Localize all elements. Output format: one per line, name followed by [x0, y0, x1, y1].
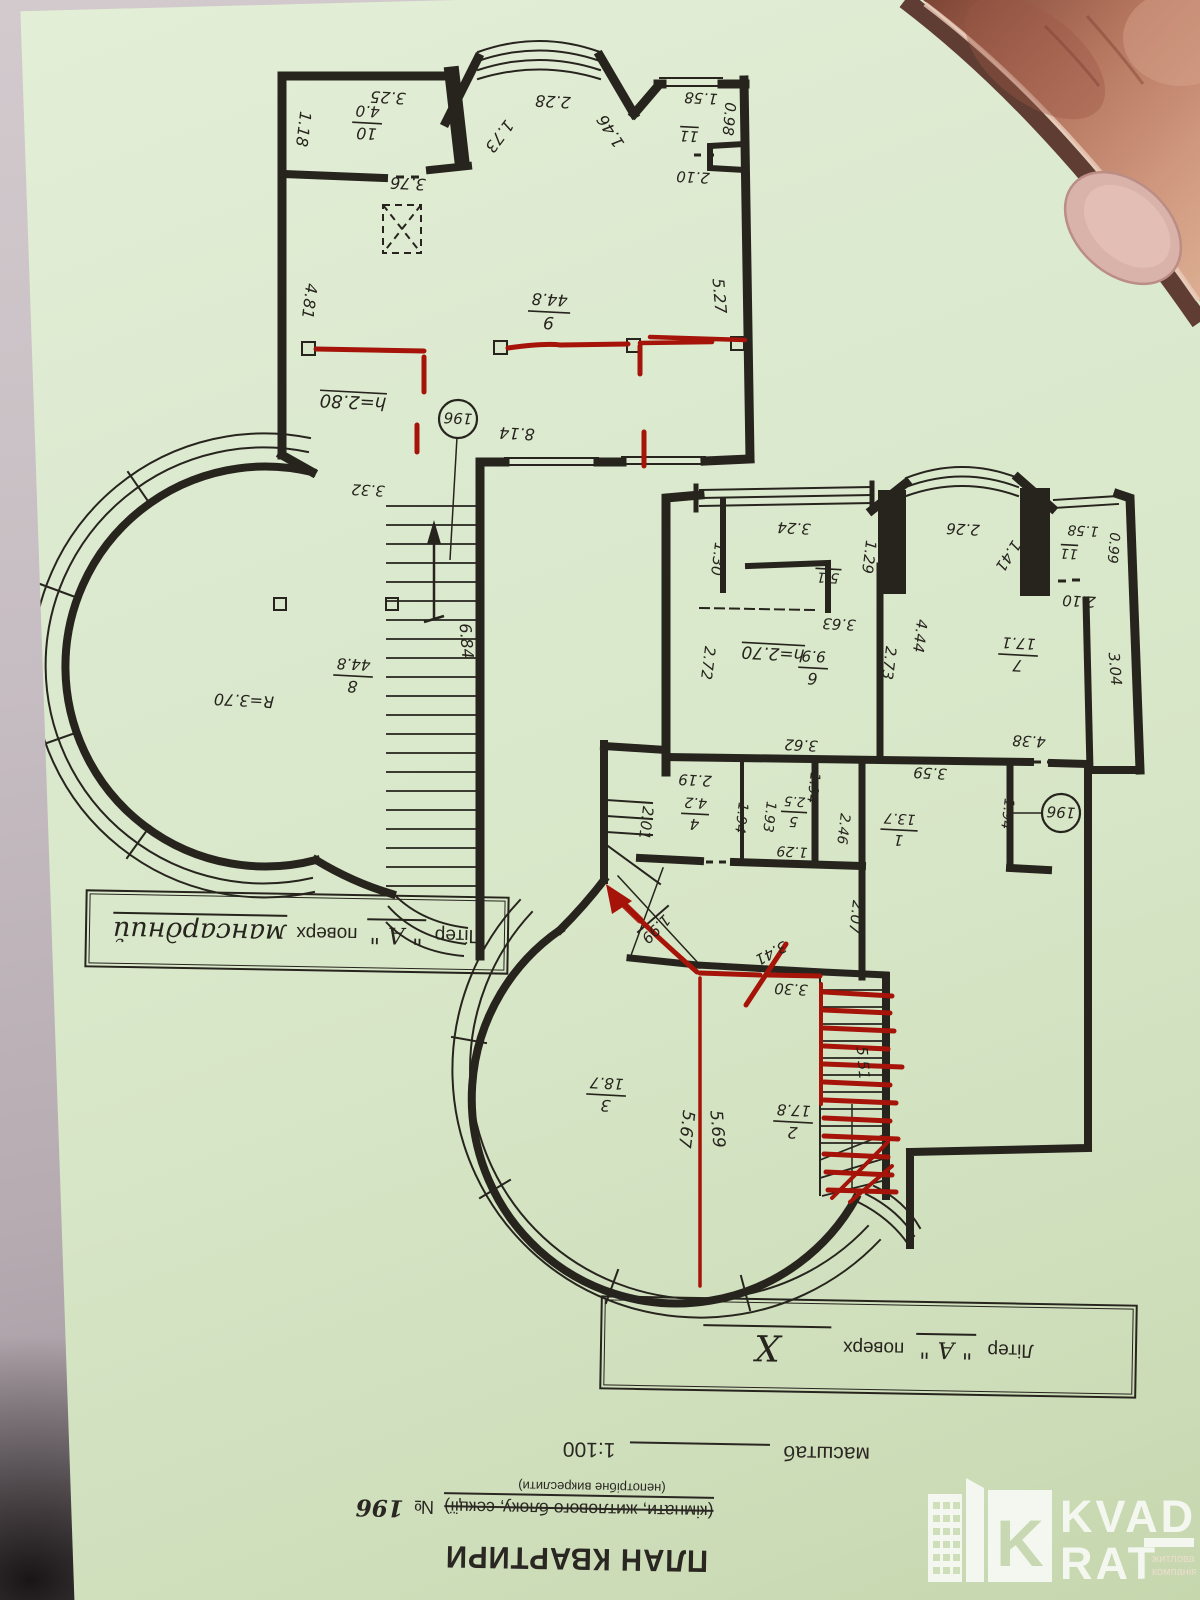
svg-text:8.14: 8.14 [499, 423, 536, 444]
unit-line: (кімнати, житлового блоку, секції) № 196 [356, 1491, 714, 1527]
room-area-label: 52.5 [780, 792, 808, 829]
document-title: ПЛАН КВАРТИРИ [445, 1538, 709, 1579]
svg-text:1.30: 1.30 [707, 541, 729, 576]
dimension-label: 4.44 [909, 618, 931, 653]
svg-text:9.9: 9.9 [801, 646, 826, 665]
dimension-label: 2.46 [833, 812, 853, 845]
dimension-label: 1.46 [593, 111, 628, 151]
svg-text:4.44: 4.44 [909, 618, 931, 653]
dimension-label: 2.01 [635, 805, 657, 840]
svg-text:0.98: 0.98 [719, 102, 740, 137]
photo-of-floor-plan-document: 3.251.183.761.732.281.461.580.98112.104.… [0, 0, 1200, 1600]
dimension-label: 6.84 [455, 622, 477, 659]
dimension-label: h=2.80 [319, 389, 387, 413]
scale-value: 1:100 [563, 1436, 616, 1461]
dimension-label: 2.10 [676, 167, 710, 187]
dimension-label: 4.81 [298, 282, 321, 320]
finger [895, 0, 1200, 365]
room-area-label: 844.8 [332, 654, 374, 697]
svg-text:2.28: 2.28 [535, 91, 572, 112]
svg-text:4.0: 4.0 [355, 101, 380, 120]
svg-text:7: 7 [1011, 656, 1023, 676]
dimension-label: 2.26 [946, 519, 980, 539]
svg-text:1.29: 1.29 [776, 842, 808, 860]
unit-number-badge: 196 [438, 399, 478, 439]
dimension-label: 1.41 [991, 537, 1024, 575]
svg-text:2.26: 2.26 [946, 519, 980, 539]
dimension-label: 11 [679, 127, 699, 146]
logo-name-line2: RAT [1060, 1538, 1158, 1589]
svg-text:17.8: 17.8 [776, 1100, 811, 1120]
room-area-label: 717.1 [997, 633, 1039, 676]
room-area-label: 44.2 [680, 793, 710, 833]
dimension-label: 3.41 [752, 937, 790, 969]
svg-text:5.51: 5.51 [853, 1046, 874, 1081]
caption-floor-name: X [703, 1324, 832, 1366]
dimension-label: 0.98 [719, 102, 740, 137]
caption-prefix: Літер [435, 923, 482, 946]
svg-text:196: 196 [1046, 802, 1076, 821]
svg-text:1.29: 1.29 [858, 539, 880, 574]
svg-text:196: 196 [443, 408, 473, 427]
svg-text:8: 8 [347, 677, 358, 697]
scale-label: масштаб [783, 1440, 870, 1466]
svg-text:2.01: 2.01 [635, 805, 657, 840]
dimension-label: R=3.70 [213, 689, 274, 711]
strike-note: (непотрібне викреслити) [518, 1478, 666, 1496]
svg-text:3.41: 3.41 [752, 937, 790, 969]
dimension-label: 5.1 [815, 568, 842, 585]
room-area-label: 318.7 [585, 1073, 627, 1116]
dimension-label: 2.72 [697, 645, 719, 680]
dimension-label: 1.94 [997, 797, 1017, 830]
logo-name-line1: KVAD [1060, 1491, 1196, 1542]
dimension-label: 1.94 [731, 801, 751, 834]
dimension-label: 5.69 [705, 1109, 728, 1148]
dimension-label: 3.30 [774, 979, 808, 999]
svg-text:3.62: 3.62 [784, 735, 818, 755]
svg-text:4.81: 4.81 [298, 282, 321, 320]
svg-text:1.99: 1.99 [638, 911, 674, 947]
dimension-label: 1.99 [638, 911, 674, 947]
svg-text:2.72: 2.72 [697, 645, 719, 680]
dimension-label: h=2.70 [741, 641, 805, 664]
svg-text:4.2: 4.2 [684, 793, 707, 810]
svg-text:1.58: 1.58 [684, 88, 718, 108]
svg-text:44.8: 44.8 [336, 654, 371, 674]
dimension-label: 1.29 [776, 842, 808, 860]
svg-text:3.76: 3.76 [390, 173, 427, 194]
svg-text:13.7: 13.7 [883, 809, 916, 827]
svg-text:5.69: 5.69 [705, 1109, 728, 1148]
scale-rule-line [629, 1441, 769, 1446]
logo-tagline-line2: компанія [1152, 1566, 1196, 1578]
svg-text:1.94: 1.94 [731, 801, 751, 834]
logo-tagline-line1: житлова [1152, 1553, 1196, 1565]
svg-text:R=3.70: R=3.70 [213, 689, 274, 711]
svg-text:1.73: 1.73 [481, 116, 518, 156]
svg-text:5.67: 5.67 [674, 1109, 698, 1149]
dimension-label: 1.58 [1067, 521, 1099, 539]
svg-text:10: 10 [356, 123, 377, 143]
svg-text:2.10: 2.10 [676, 167, 710, 187]
caption-word: поверх [843, 1336, 905, 1359]
svg-text:1.46: 1.46 [593, 111, 628, 151]
dimension-label: 8.14 [499, 423, 536, 444]
svg-text:3: 3 [600, 1096, 611, 1116]
svg-text:17.1: 17.1 [1001, 633, 1036, 653]
svg-text:5.27: 5.27 [708, 277, 730, 315]
svg-text:18.7: 18.7 [589, 1073, 624, 1093]
lower-plan-walls [452, 467, 1140, 1318]
svg-text:3.32: 3.32 [351, 480, 385, 500]
dimension-label: 4.38 [1012, 731, 1046, 751]
dimension-label: 11 [1060, 545, 1079, 562]
svg-text:11: 11 [679, 127, 699, 146]
unit-number-badge: 196 [1041, 793, 1081, 833]
dimension-label: 2.28 [535, 91, 572, 112]
room-area-label: 113.7 [879, 809, 918, 850]
dimension-label: 2.19 [678, 770, 712, 790]
dimension-label: 1.29 [858, 539, 880, 574]
svg-text:1: 1 [893, 831, 903, 849]
caption-floor-name: мансардний [113, 912, 288, 949]
kvadrat-logo: K KVAD RAT житлова компанія [928, 1478, 1196, 1598]
dimension-label: 3.59 [913, 763, 947, 783]
svg-text:2.46: 2.46 [833, 812, 853, 845]
svg-text:3.04: 3.04 [1105, 652, 1126, 687]
svg-text:5: 5 [789, 813, 799, 829]
building-icon [928, 1478, 984, 1582]
room-area-label: 217.8 [772, 1100, 814, 1143]
svg-text:3.59: 3.59 [913, 763, 947, 783]
dimension-label: 3.63 [822, 614, 856, 634]
dimension-label: 1.73 [481, 116, 518, 156]
svg-text:3.30: 3.30 [774, 979, 808, 999]
logo-letter: K [996, 1506, 1044, 1580]
svg-text:2: 2 [787, 1123, 798, 1143]
caption-prefix: Літер [987, 1338, 1034, 1361]
dimension-label: 3.62 [784, 735, 818, 755]
scale-row: масштаб 1:100 [563, 1436, 870, 1465]
svg-text:1.18: 1.18 [292, 110, 315, 148]
svg-text:1.93: 1.93 [759, 800, 779, 833]
svg-text:6: 6 [807, 669, 818, 689]
svg-text:6.84: 6.84 [455, 622, 477, 659]
dimension-label: 5.27 [708, 277, 730, 315]
dimension-label: 1.93 [759, 800, 779, 833]
dimension-label: 0.99 [1104, 532, 1123, 565]
upper-plan-stairs [386, 437, 478, 956]
svg-text:1.41: 1.41 [991, 537, 1024, 575]
dimension-label: 3.24 [777, 518, 811, 538]
svg-text:2.07: 2.07 [845, 899, 867, 935]
dimension-label: 3.04 [1105, 652, 1126, 687]
dimension-label: 5.67 [674, 1109, 698, 1149]
svg-text:5.1: 5.1 [817, 568, 840, 585]
svg-text:1.94: 1.94 [997, 797, 1017, 830]
svg-text:2.10: 2.10 [1062, 591, 1096, 611]
unit-number: 196 [356, 1494, 404, 1522]
floor-caption-upper: Літер " А " поверх мансардний [84, 889, 509, 974]
dimension-label: 3.32 [351, 480, 385, 500]
dimension-label: 1.30 [707, 541, 729, 576]
unit-number-label: № [414, 1495, 435, 1517]
logo-t-bar [1144, 1538, 1194, 1547]
svg-text:9: 9 [543, 312, 555, 333]
room-area-label: 944.8 [527, 289, 571, 333]
svg-text:4.38: 4.38 [1012, 731, 1046, 751]
dimension-label: 1.18 [292, 110, 315, 148]
unit-line-text: (кімнати, житлового блоку, секції) [444, 1497, 714, 1522]
svg-text:44.8: 44.8 [531, 289, 568, 310]
svg-text:4: 4 [689, 815, 699, 833]
svg-text:2.19: 2.19 [678, 770, 712, 790]
logo-k-tile: K [988, 1490, 1052, 1582]
dimension-label: 5.51 [853, 1046, 874, 1081]
svg-text:11: 11 [1060, 545, 1079, 562]
caption-word: поверх [296, 921, 358, 944]
svg-text:3.24: 3.24 [777, 518, 811, 538]
room-area-label: 104.0 [351, 101, 383, 144]
floor-caption-lower: Літер " А " поверх X [599, 1295, 1138, 1398]
dimension-label: 2.07 [845, 899, 867, 935]
dimension-label: 3.76 [390, 173, 427, 194]
caption-letter: " А " [916, 1333, 976, 1363]
dimension-label: 1.58 [684, 88, 718, 108]
dimension-label: 2.10 [1062, 591, 1096, 611]
svg-text:3.63: 3.63 [822, 614, 856, 634]
room-area-label: 69.9 [797, 646, 829, 689]
svg-text:1.58: 1.58 [1067, 521, 1099, 539]
svg-text:0.99: 0.99 [1104, 532, 1123, 565]
title-block: ПЛАН КВАРТИРИ (кімнати, житлового блоку,… [339, 1406, 992, 1589]
caption-letter: " А " [366, 919, 426, 949]
svg-text:2.5: 2.5 [784, 792, 806, 808]
